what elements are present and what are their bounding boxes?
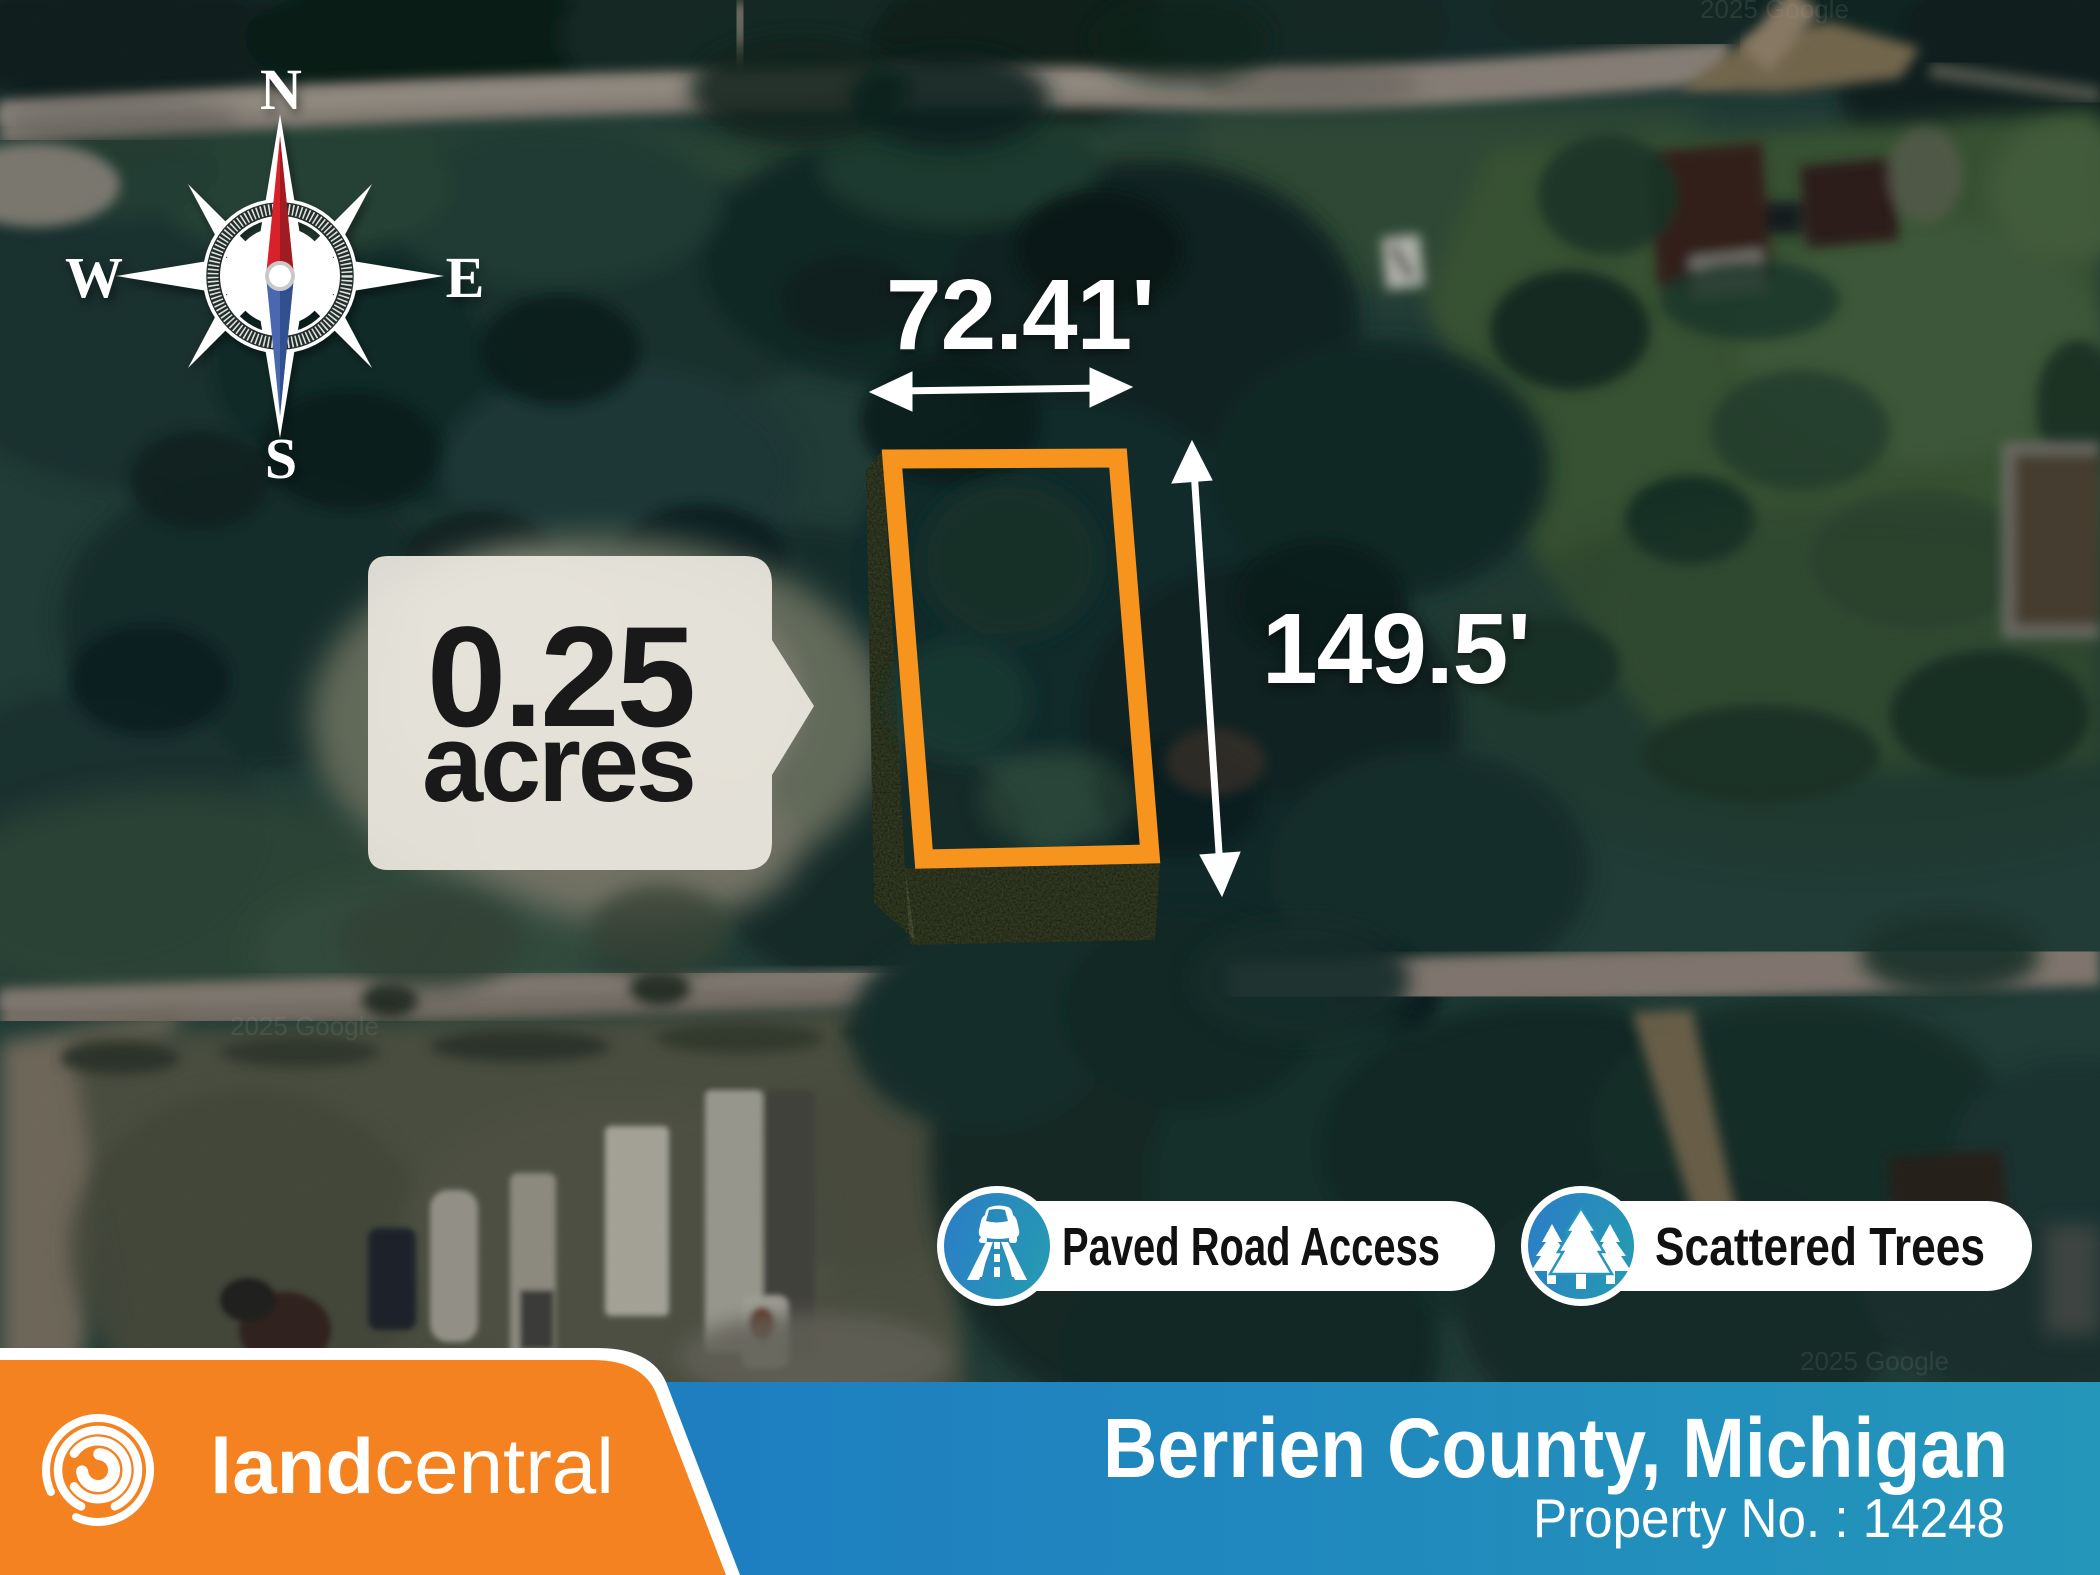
- svg-text:S: S: [265, 426, 297, 491]
- svg-text:Scattered Trees: Scattered Trees: [1655, 1217, 1985, 1277]
- svg-text:landcentral: landcentral: [210, 1422, 614, 1510]
- svg-text:acres: acres: [422, 702, 694, 825]
- svg-text:E: E: [446, 245, 485, 310]
- svg-text:Property No. : 14248: Property No. : 14248: [1533, 1487, 2005, 1549]
- svg-text:Berrien County, Michigan: Berrien County, Michigan: [1103, 1401, 2008, 1495]
- svg-text:W: W: [65, 245, 123, 310]
- svg-text:N: N: [260, 57, 302, 122]
- svg-text:Paved Road Access: Paved Road Access: [1062, 1217, 1440, 1277]
